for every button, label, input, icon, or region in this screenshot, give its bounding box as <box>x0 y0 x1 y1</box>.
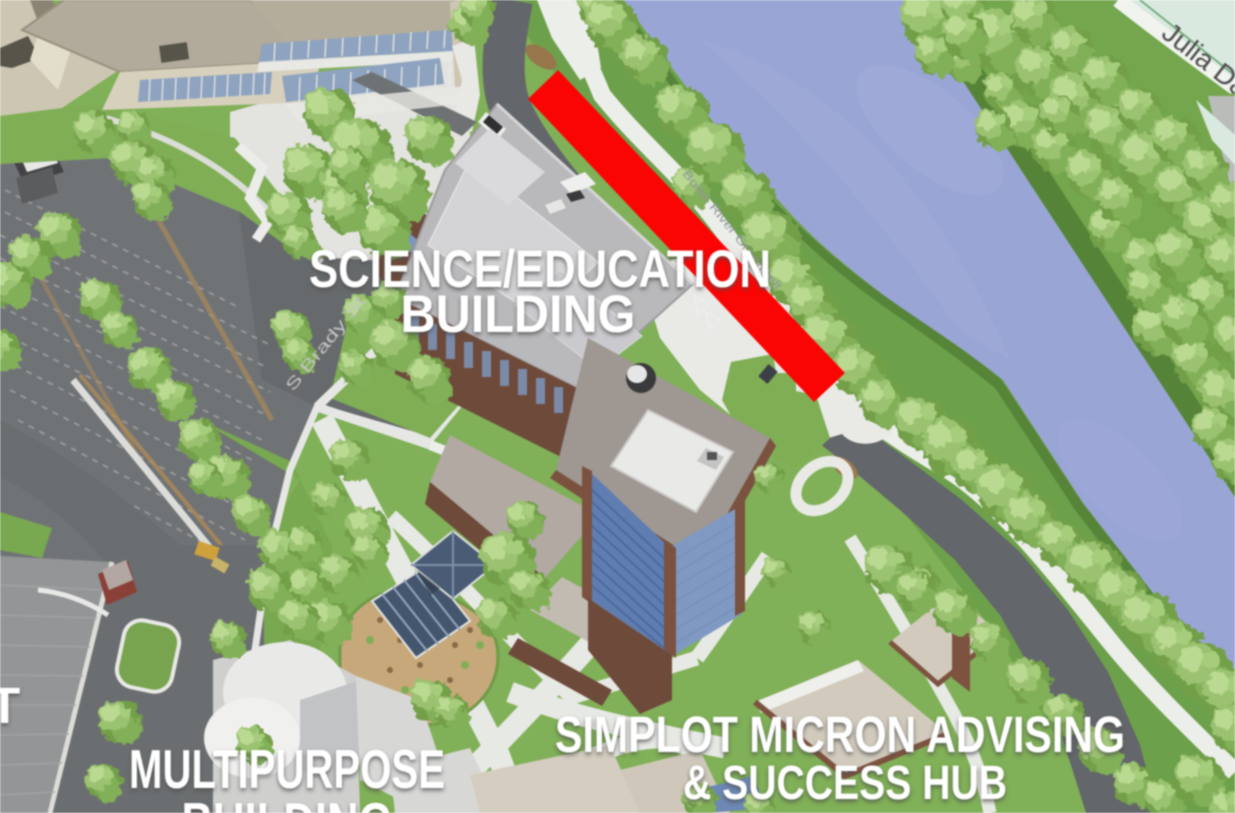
svg-text:& SUCCESS HUB: & SUCCESS HUB <box>683 757 1007 810</box>
svg-text:BUILDING: BUILDING <box>182 791 393 813</box>
svg-text:T: T <box>0 677 20 734</box>
svg-text:SIMPLOT MICRON ADVISING: SIMPLOT MICRON ADVISING <box>555 706 1125 763</box>
svg-text:BUILDING: BUILDING <box>401 285 636 344</box>
